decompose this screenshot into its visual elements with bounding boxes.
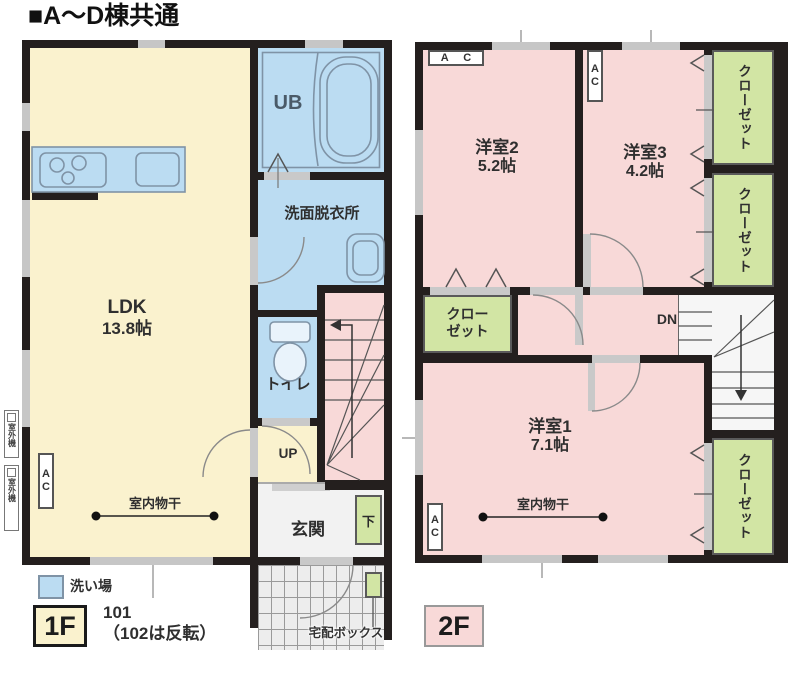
washroom-label: 洗面脱衣所 <box>262 205 382 223</box>
closet-top1-label: クローゼット <box>712 50 774 165</box>
ac-unit-room2: A C <box>428 50 484 66</box>
window-ub-top <box>305 40 343 48</box>
door-opening-toilet <box>262 418 310 426</box>
door-opening-room3 <box>590 287 643 295</box>
ac-unit-ldk: AC <box>38 453 54 509</box>
outdoor-unit-label: 室外機 <box>8 423 16 447</box>
closet-opening-middle <box>430 287 510 295</box>
ac-unit-room3: AC <box>587 50 603 102</box>
outdoor-unit-label: 室外機 <box>8 478 16 502</box>
door-leaf-room3 <box>583 234 591 287</box>
room3-name: 洋室3 <box>595 143 695 163</box>
door-leaf-room1 <box>588 363 595 411</box>
closet-top2-label: クローゼット <box>712 173 774 287</box>
window-ldk-left-3 <box>22 350 30 427</box>
indoor-drying-label-2f: 室内物干 <box>493 497 593 512</box>
closet-opening-top1 <box>704 55 712 159</box>
dn-label: DN <box>650 311 684 328</box>
floor-tag-2f: 2F <box>424 605 484 647</box>
room-washroom-lower <box>258 285 317 310</box>
window-2f-top-1 <box>492 42 550 50</box>
page-title: ■A～D棟共通 <box>28 2 328 32</box>
entrance-label: 玄関 <box>280 520 336 540</box>
door-opening-ldk-hall <box>250 428 258 477</box>
window-ldk-left-1 <box>22 103 30 131</box>
room1-size: 7.1帖 <box>500 437 600 456</box>
closet-bottom-label: クローゼット <box>712 438 774 555</box>
ldk-size: 13.8帖 <box>67 319 187 339</box>
indoor-drying-label-1f: 室内物干 <box>105 496 205 511</box>
window-2f-left-2 <box>415 400 423 475</box>
ldk-label: LDK 13.8帖 <box>67 297 187 339</box>
wall-porch-left <box>250 565 258 628</box>
door-leaf-room2 <box>575 295 583 345</box>
closet-middle-label: クロー ゼット <box>423 295 512 351</box>
stairs-lower-2f <box>712 355 774 430</box>
unit-number: 101 <box>103 602 243 623</box>
outdoor-unit-square <box>7 468 16 477</box>
room2-size: 5.2帖 <box>447 158 547 177</box>
ac-unit-room1: AC <box>427 503 443 551</box>
stairs-upper-2f <box>678 295 774 355</box>
room3-label: 洋室3 4.2帖 <box>595 143 695 182</box>
door-opening-washroom <box>250 237 258 285</box>
outdoor-unit-square <box>7 413 16 422</box>
outdoor-unit-2: 室外機 <box>4 465 19 531</box>
room1-label: 洋室1 7.1帖 <box>500 417 600 456</box>
room1-name: 洋室1 <box>500 417 600 437</box>
wall-stairs-bottom-1f <box>325 480 384 490</box>
ub-label: UB <box>266 92 310 116</box>
wash-area-label: 洗い場 <box>70 578 140 595</box>
floor-tag-1f: 1F <box>33 605 87 647</box>
room2-label: 洋室2 5.2帖 <box>447 138 547 177</box>
window-2f-top-2 <box>622 42 680 50</box>
door-opening-room1 <box>592 355 640 363</box>
window-2f-left-1 <box>415 130 423 215</box>
unit-note: 101 （102は反転） <box>103 602 243 645</box>
closet-opening-bottom <box>704 443 712 550</box>
window-ldk-top <box>138 40 165 48</box>
room-toilet <box>258 317 317 418</box>
wash-area-swatch <box>38 575 64 599</box>
floorplan-canvas: ■A～D棟共通 宅配ボックス 下 AC 室外機 室外機 LDK 13.8帖 U <box>0 0 800 681</box>
ldk-name: LDK <box>67 297 187 319</box>
room2-name: 洋室2 <box>447 138 547 158</box>
door-opening-ub <box>264 172 310 180</box>
closet-opening-top2 <box>704 178 712 282</box>
window-2f-bottom-2 <box>598 555 668 563</box>
window-ldk-bottom <box>90 557 213 565</box>
shoe-cabinet-label: 下 <box>362 511 375 530</box>
unit-mirror-note: （102は反転） <box>103 623 243 644</box>
window-2f-bottom-1 <box>482 555 562 563</box>
outdoor-unit-1: 室外機 <box>4 410 19 458</box>
toilet-label: トイレ <box>262 376 314 394</box>
room-washroom <box>258 180 384 285</box>
room3-size: 4.2帖 <box>595 163 695 182</box>
door-opening-room2 <box>530 287 583 295</box>
stairs-area-1f <box>325 293 384 480</box>
delivery-box <box>365 572 382 598</box>
wall-kitchen-stub <box>32 192 98 200</box>
room-yoshitsu1 <box>423 363 704 555</box>
window-ldk-left-2 <box>22 200 30 277</box>
door-opening-entrance <box>300 557 353 565</box>
up-label: UP <box>272 446 304 462</box>
entrance-step <box>272 484 330 491</box>
delivery-box-label: 宅配ボックス <box>300 626 392 641</box>
shoe-cabinet: 下 <box>355 495 382 545</box>
